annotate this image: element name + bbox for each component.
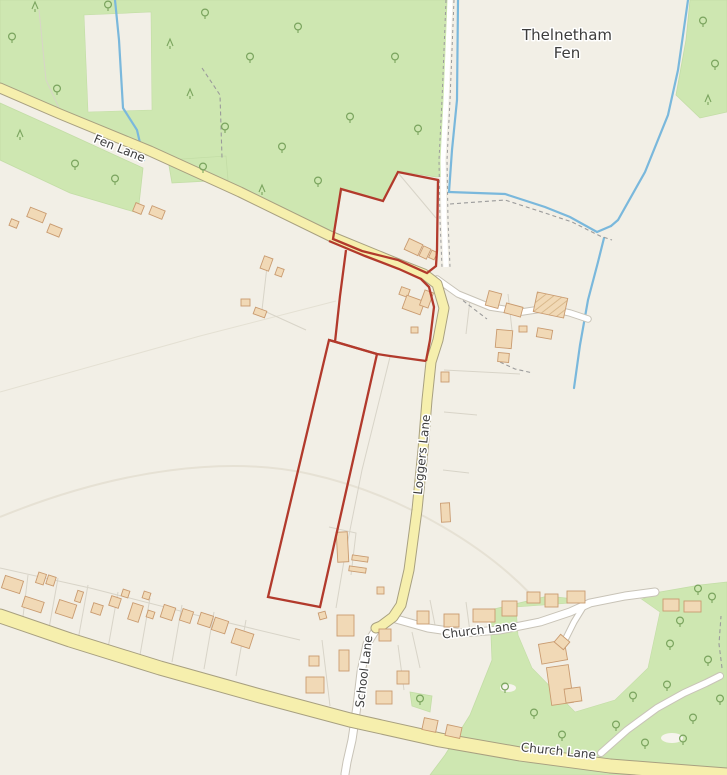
building — [397, 671, 409, 684]
building — [422, 718, 438, 733]
building — [441, 372, 449, 382]
building — [318, 611, 327, 620]
building — [495, 329, 513, 348]
place-label: Thelnetham — [521, 26, 612, 44]
building — [567, 591, 585, 603]
building — [411, 327, 418, 333]
building — [146, 610, 155, 619]
building — [663, 599, 679, 611]
building — [339, 650, 349, 671]
building — [519, 326, 527, 332]
building — [241, 299, 250, 306]
building — [502, 601, 517, 616]
building — [684, 601, 701, 612]
building — [536, 328, 552, 339]
building — [377, 587, 384, 594]
building — [309, 656, 319, 666]
building — [527, 592, 540, 603]
building — [121, 589, 130, 598]
building — [142, 591, 151, 600]
building — [417, 611, 429, 624]
building — [441, 503, 451, 522]
building — [498, 353, 510, 363]
building — [473, 609, 495, 622]
map-canvas[interactable]: ThelnethamFenFen LaneLoggers LaneChurch … — [0, 0, 727, 775]
place-label: Fen — [554, 44, 581, 62]
building — [337, 615, 354, 636]
building — [306, 677, 324, 693]
building — [545, 594, 558, 607]
building — [336, 532, 349, 563]
building — [376, 691, 392, 704]
map-svg[interactable]: ThelnethamFenFen LaneLoggers LaneChurch … — [0, 0, 727, 775]
building — [564, 687, 582, 703]
building — [379, 629, 391, 641]
